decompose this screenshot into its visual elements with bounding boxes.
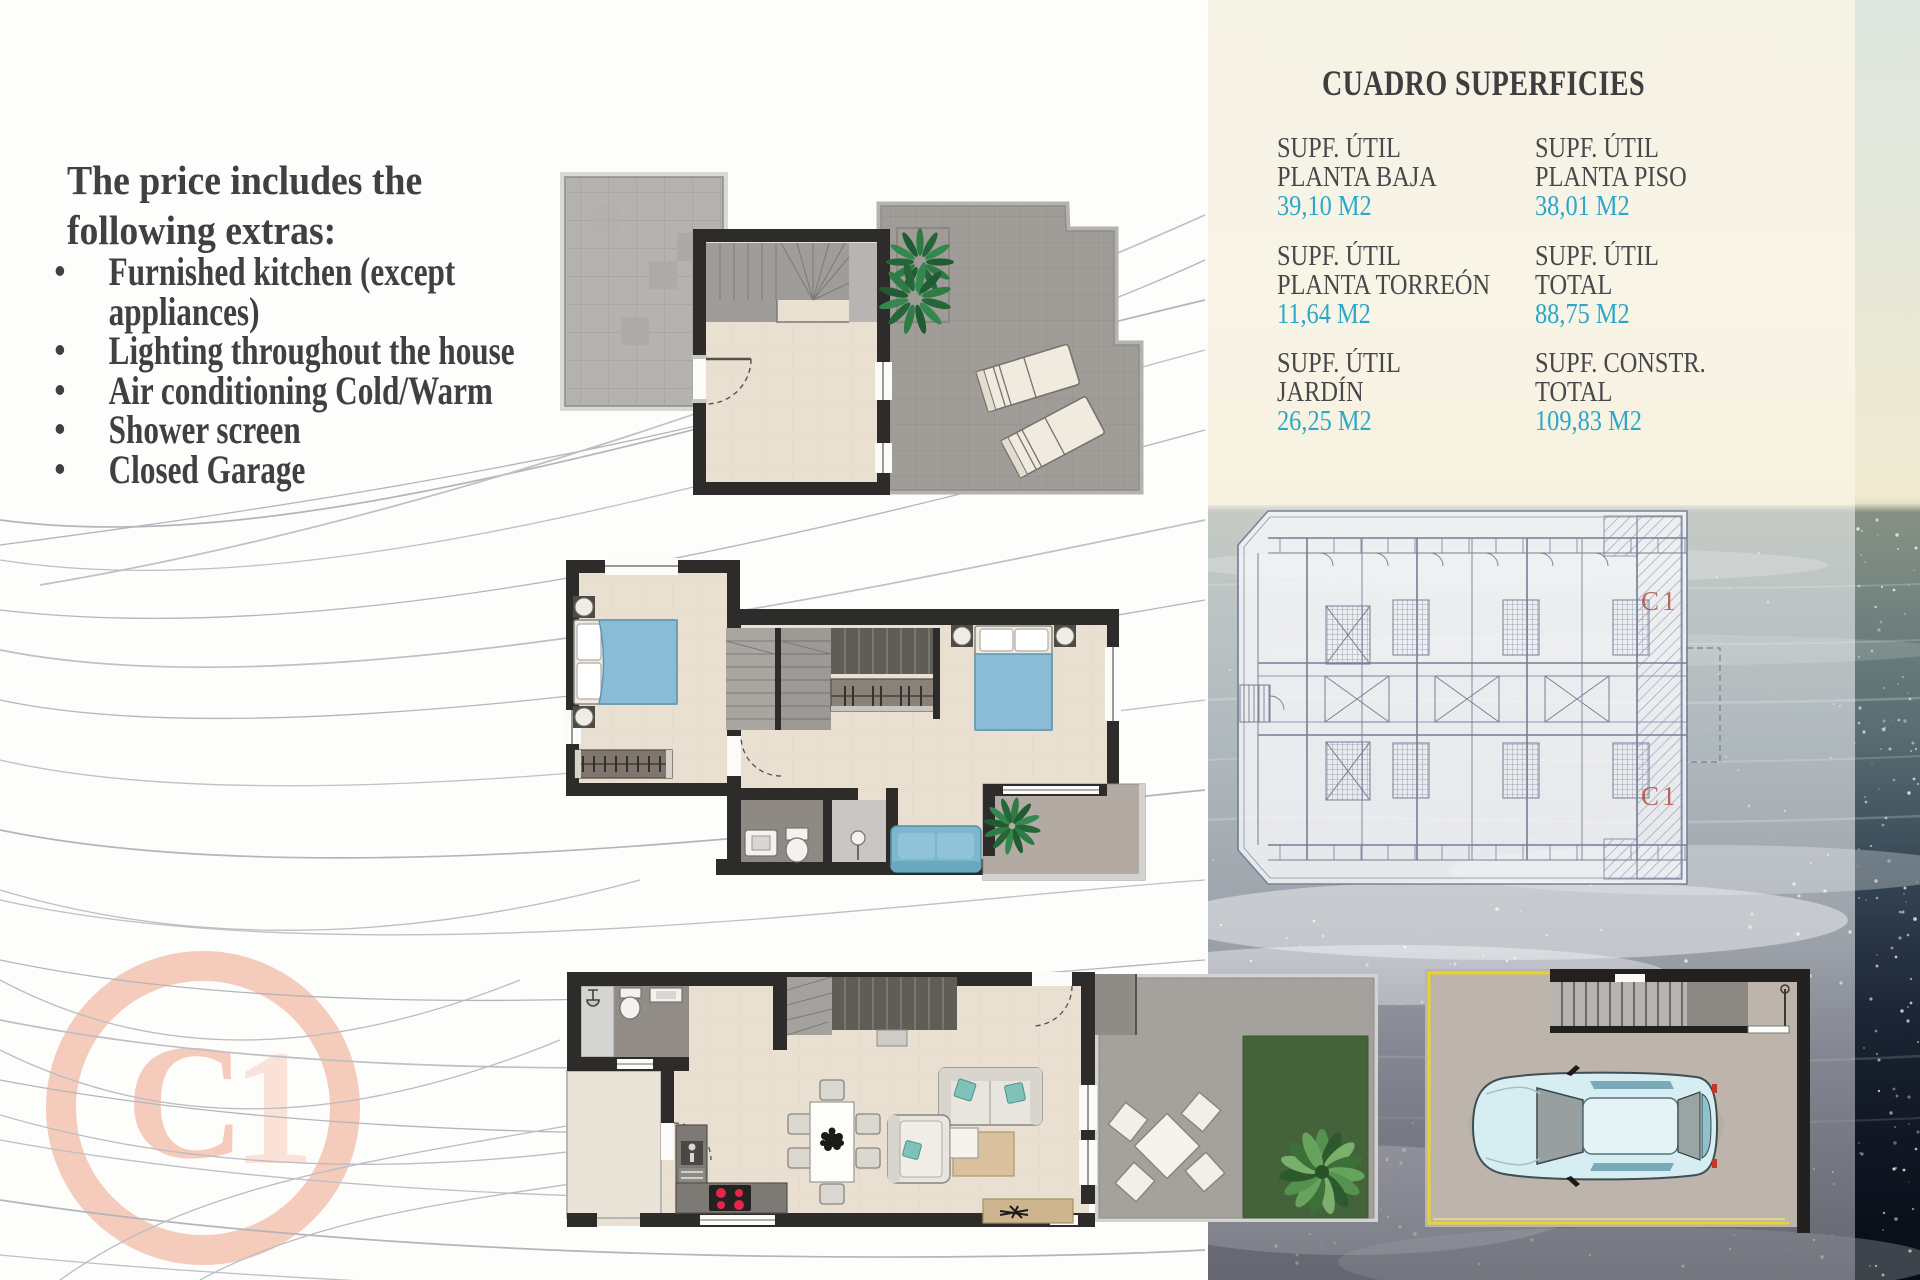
svg-text:C1: C1 <box>1641 781 1679 811</box>
svg-text:C1: C1 <box>1641 586 1679 616</box>
